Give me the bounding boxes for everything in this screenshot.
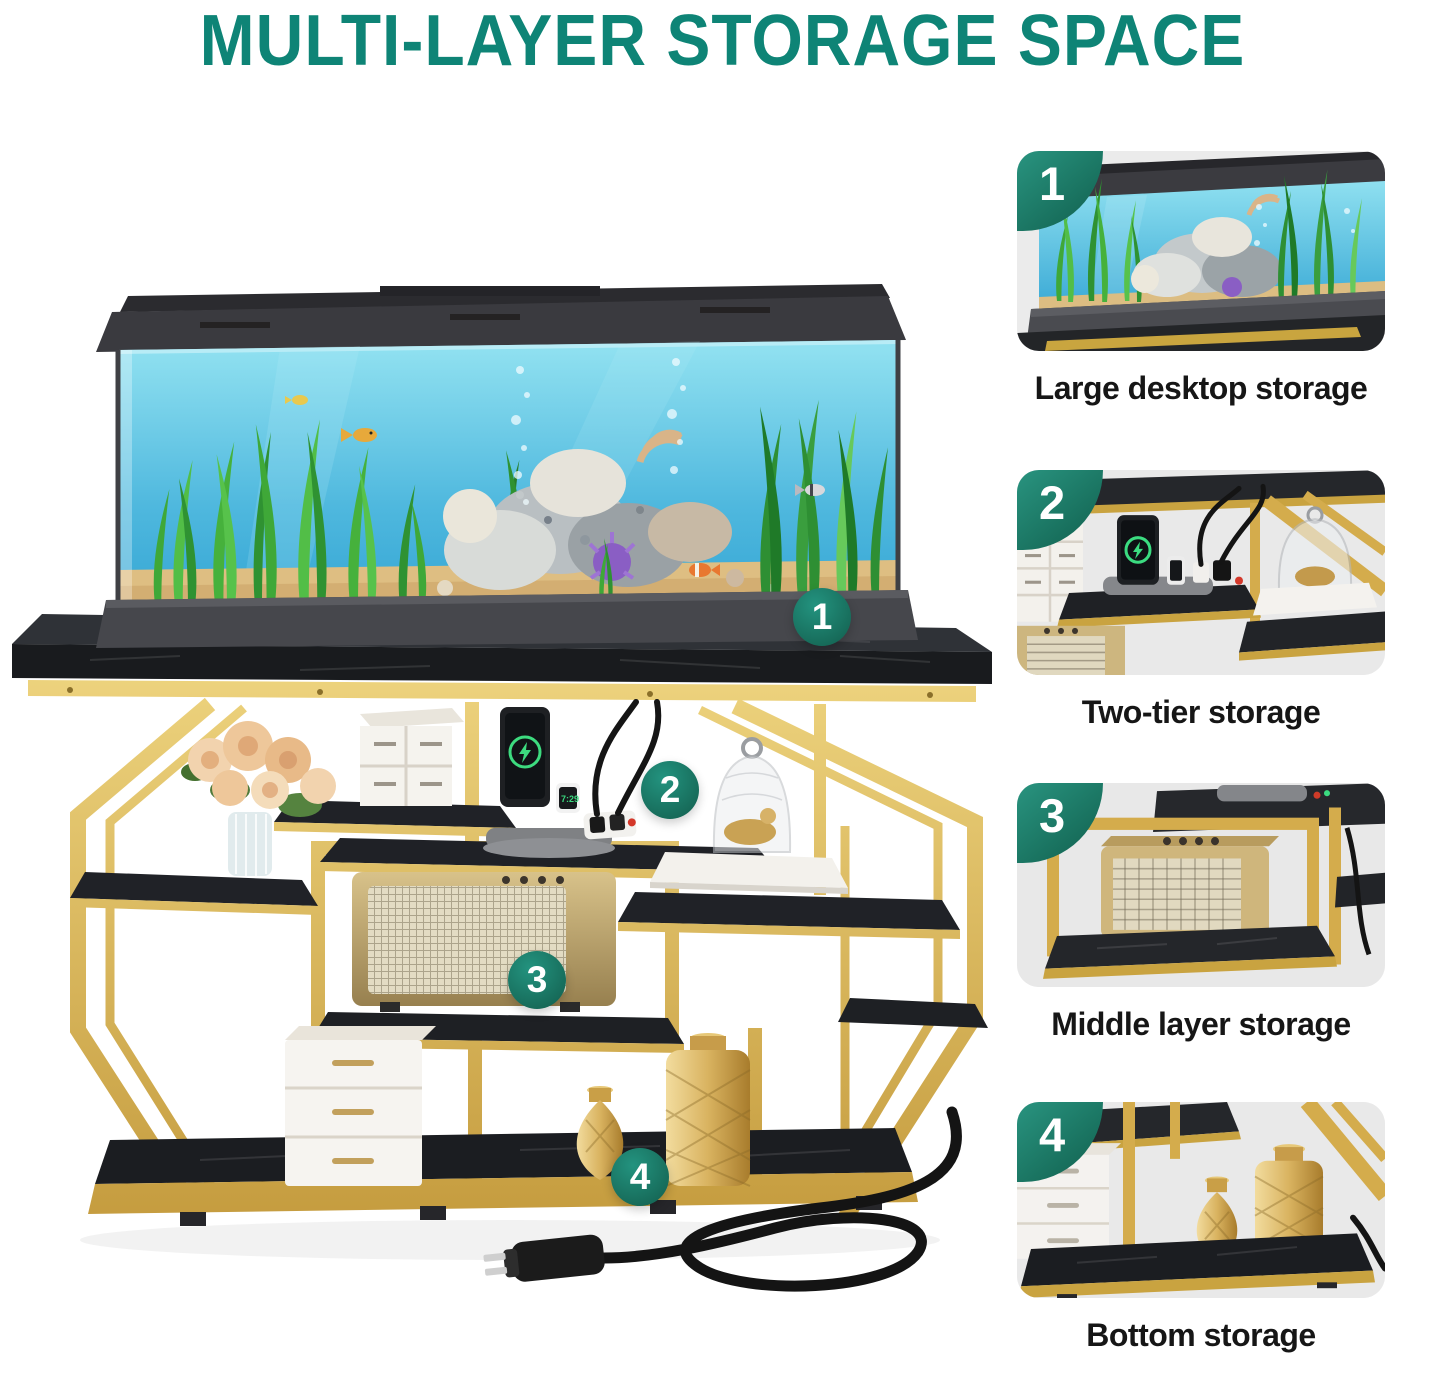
callout-badge-2: 2 [641,761,699,819]
feature-thumbnail-2: 2 [1017,470,1385,675]
feature-card-3: 3 Middle layer storage [1017,783,1385,1043]
callout-badge-3: 3 [508,951,566,1009]
callout-number: 2 [660,769,681,811]
retro-speaker [352,872,616,1012]
feature-caption-2: Two-tier storage [1017,694,1385,731]
feature-number: 2 [1039,475,1065,530]
callout-number: 3 [527,959,548,1001]
callout-badge-4: 4 [611,1148,669,1206]
feature-number: 3 [1039,788,1065,843]
decor-items: 7:29 [181,702,790,1186]
feature-number: 1 [1039,156,1065,211]
feature-number: 4 [1039,1107,1065,1162]
feature-caption-4: Bottom storage [1017,1317,1385,1354]
feature-caption-1: Large desktop storage [1017,370,1385,407]
glass-cloche [714,739,790,852]
feature-card-1: 1 Large desktop storage [1017,151,1385,407]
feature-card-4: 4 Bottom storage [1017,1102,1385,1354]
three-drawer-box [285,1026,436,1186]
feature-thumbnail-4: 4 [1017,1102,1385,1298]
feature-card-2: 2 Two-tier storage [1017,470,1385,731]
main-photo-illustration: 7:29 [0,100,1000,1390]
watch-time: 7:29 [561,794,579,804]
feature-thumbnail-1: 1 [1017,151,1385,351]
callout-badge-1: 1 [793,588,851,646]
product-photo-main: 7:29 [0,100,1000,1390]
callout-number: 1 [812,596,833,638]
feature-caption-3: Middle layer storage [1017,1006,1385,1043]
charging-station: 7:29 [483,702,658,858]
callout-number: 4 [630,1156,651,1198]
page-title: MULTI-LAYER STORAGE SPACE [0,0,1445,82]
feature-thumbnail-3: 3 [1017,783,1385,987]
aquarium [96,284,918,648]
shelves [70,800,988,1226]
